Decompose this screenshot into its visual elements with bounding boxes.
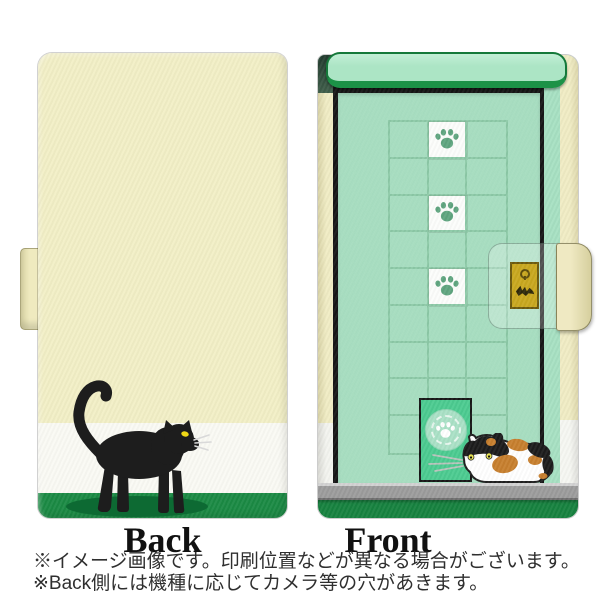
keyhole-icon — [520, 269, 530, 279]
calico-cat-illustration — [425, 433, 555, 485]
door-grid-cell — [467, 122, 506, 159]
black-cat-illustration — [55, 378, 215, 523]
gold-lock-plate — [510, 262, 539, 309]
disclaimer-notes: ※イメージ画像です。印刷位置などが異なる場合がございます。 ※Back側には機種… — [33, 551, 593, 595]
left-edge-white — [318, 423, 333, 483]
door-grid-cell — [429, 269, 468, 306]
door-grid-cell — [390, 232, 429, 269]
door-grid-cell — [390, 159, 429, 196]
spine-edge-cream — [560, 55, 578, 420]
door-grid-cell — [429, 232, 468, 269]
door-grid-cell — [467, 159, 506, 196]
door-grid-cell — [429, 196, 468, 233]
whiskers — [429, 455, 463, 471]
paw-print-icon — [434, 201, 460, 224]
product-photo: Back Front ※イメージ画像です。印刷位置などが異なる場合がございます。… — [0, 0, 600, 600]
door-grid-cell — [429, 159, 468, 196]
door-grid-cell — [429, 306, 468, 343]
door-grid-cell — [390, 269, 429, 306]
door-grid-cell — [429, 343, 468, 380]
left-edge-cream — [318, 93, 333, 423]
door-grid-cell — [467, 379, 506, 416]
disclaimer-line-2: ※Back側には機種に応じてカメラ等の穴があきます。 — [33, 573, 593, 595]
door-grid-cell — [390, 196, 429, 233]
spine-edge-white — [560, 420, 578, 483]
door-grid-cell — [390, 343, 429, 380]
door-grid-cell — [467, 343, 506, 380]
disclaimer-line-1: ※イメージ画像です。印刷位置などが異なる場合がございます。 — [33, 551, 593, 573]
magnetic-flap-tab — [556, 243, 592, 331]
ground-strip — [318, 500, 578, 518]
door-grid-cell — [429, 122, 468, 159]
floor-strip — [318, 483, 578, 500]
paw-print-icon — [434, 128, 460, 151]
door-grid-cell — [467, 196, 506, 233]
front-case — [318, 55, 578, 518]
door-grid-cell — [390, 122, 429, 159]
paw-print-icon — [434, 275, 460, 298]
door-awning — [326, 52, 567, 88]
door-grid-cell — [390, 306, 429, 343]
key-icon — [514, 283, 536, 298]
